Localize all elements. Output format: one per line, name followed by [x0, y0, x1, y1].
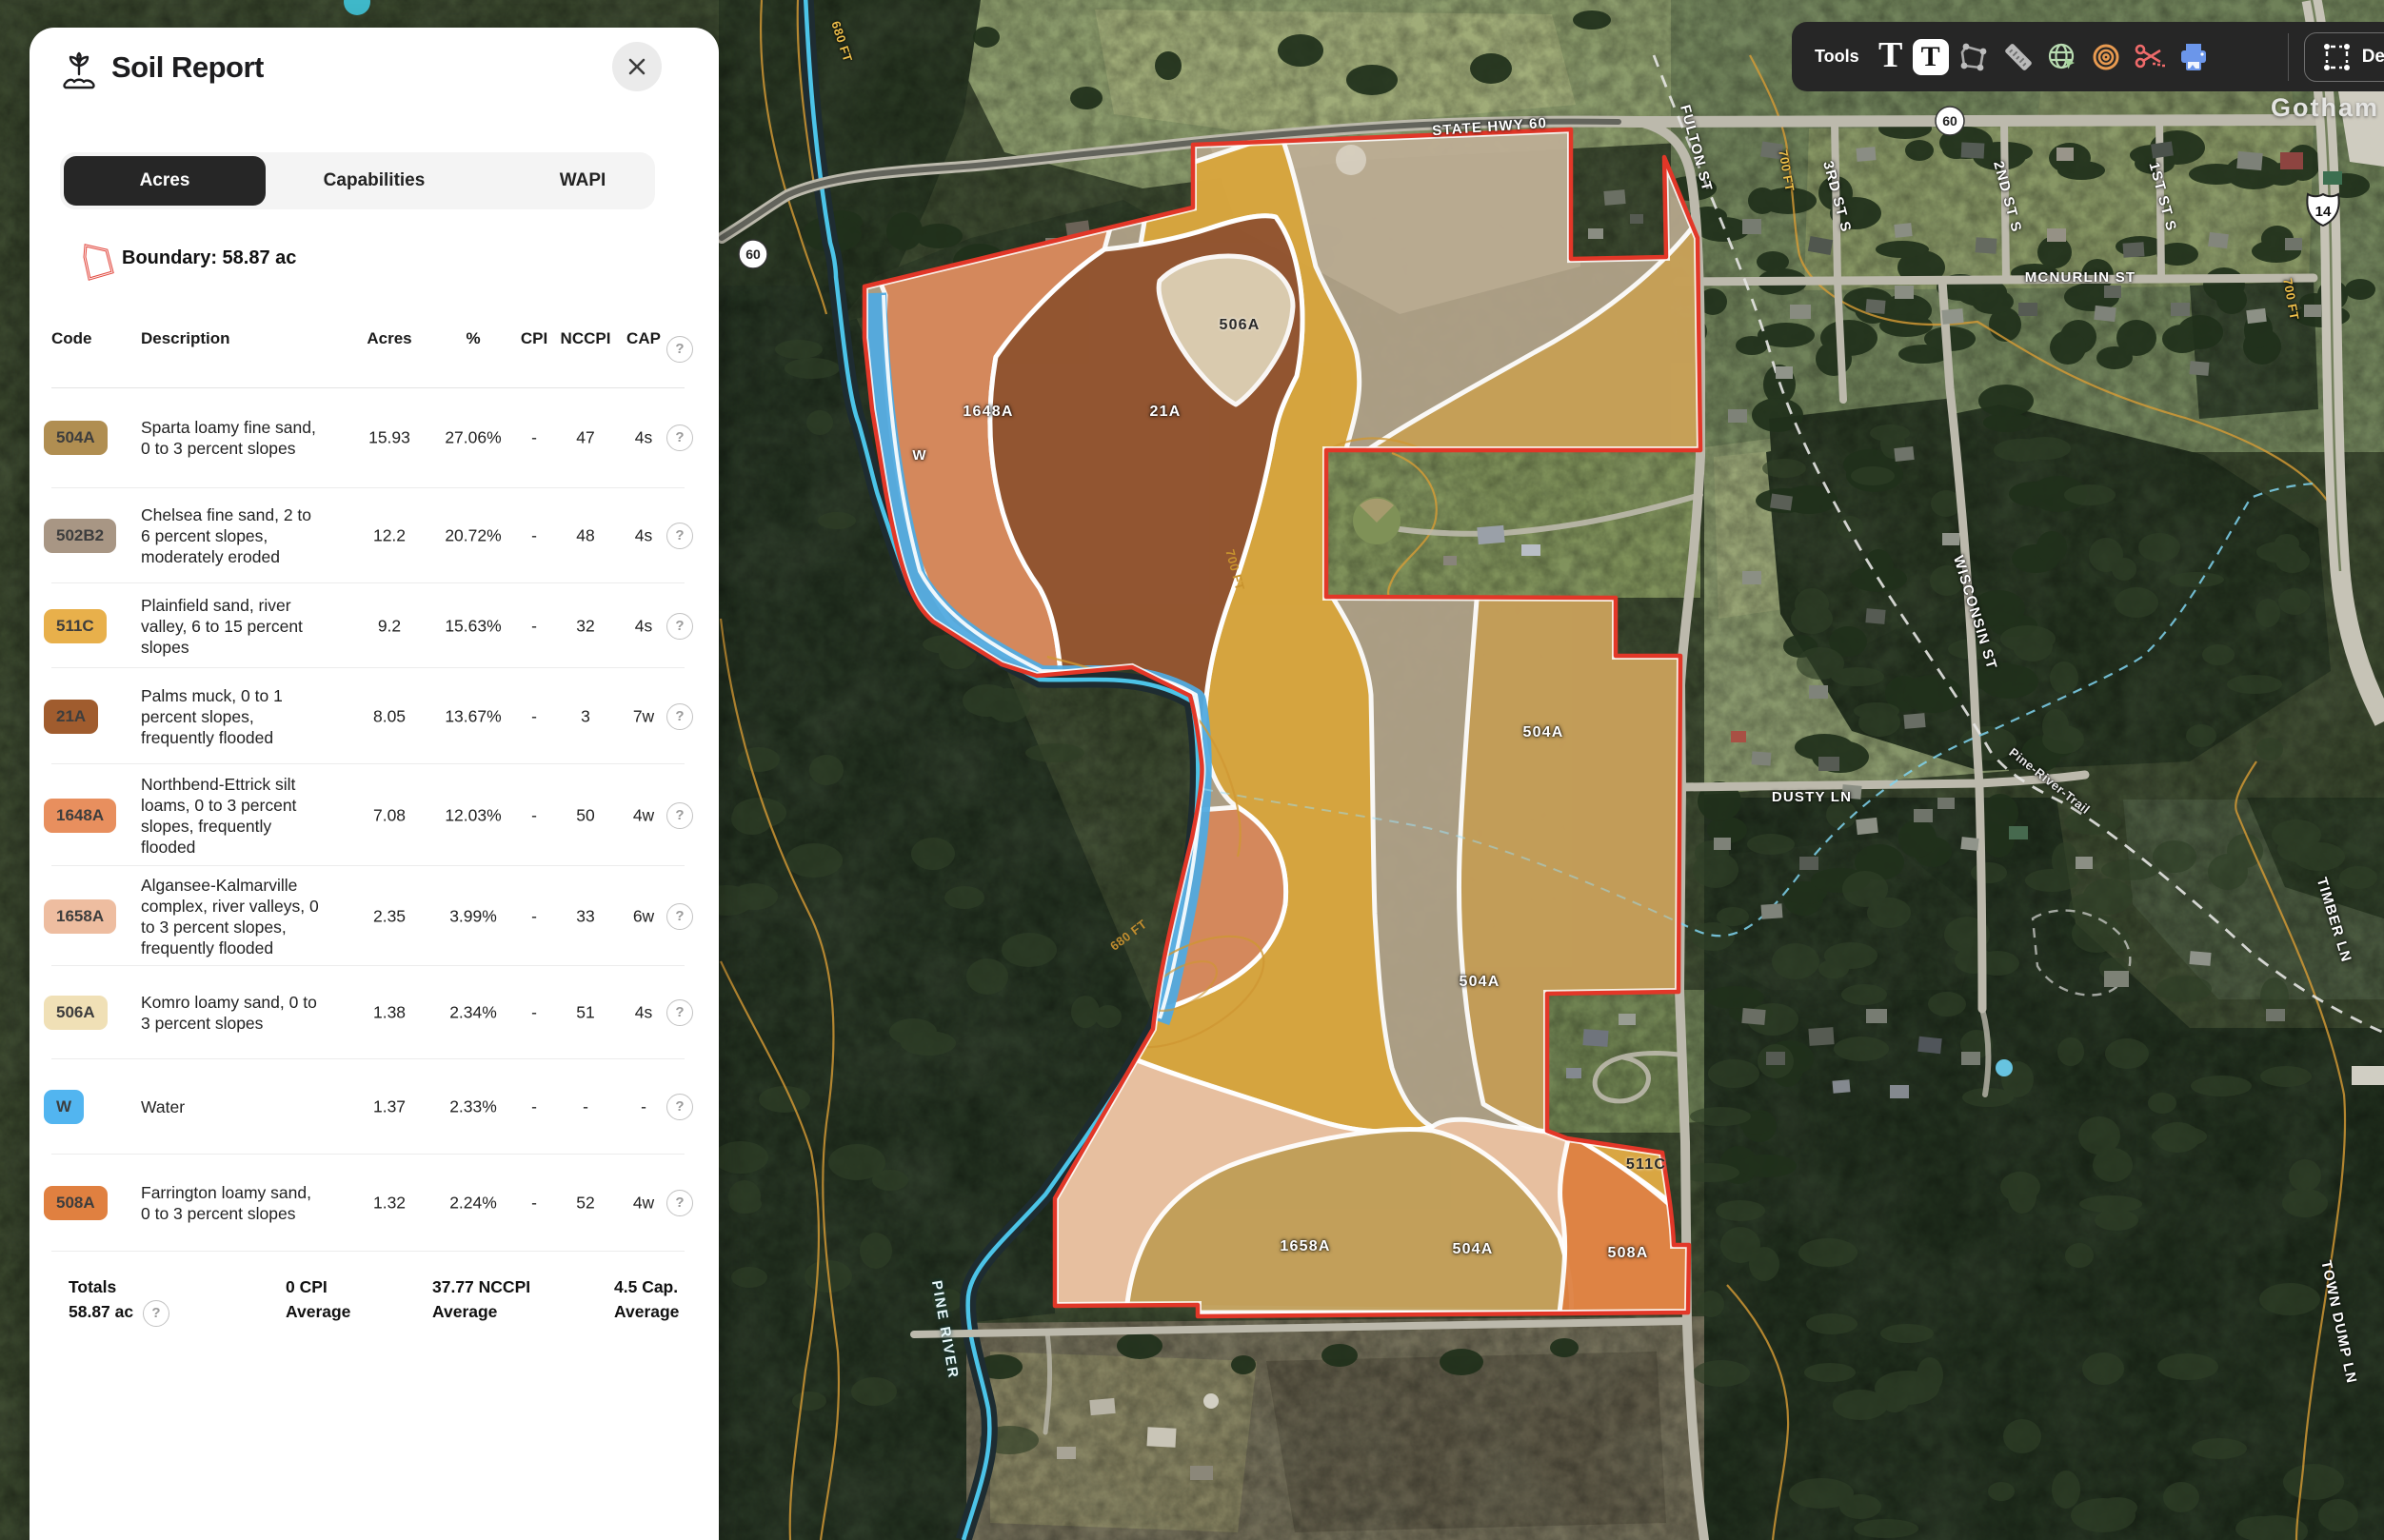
svg-text:21A: 21A	[1150, 404, 1182, 420]
svg-text:504A: 504A	[1452, 1241, 1493, 1257]
svg-text:W: W	[912, 447, 926, 464]
svg-text:60: 60	[745, 247, 761, 262]
svg-text:14: 14	[2315, 204, 2332, 220]
svg-text:DUSTY LN: DUSTY LN	[1772, 789, 1852, 805]
svg-text:MCNURLIN ST: MCNURLIN ST	[2025, 269, 2136, 286]
svg-text:504A: 504A	[1522, 724, 1563, 740]
svg-text:504A: 504A	[1459, 974, 1500, 990]
svg-text:511C: 511C	[1626, 1156, 1666, 1173]
svg-text:60: 60	[1942, 113, 1957, 128]
svg-text:1658A: 1658A	[1280, 1238, 1330, 1254]
svg-text:506A: 506A	[1219, 317, 1260, 333]
svg-text:508A: 508A	[1607, 1245, 1648, 1261]
svg-text:1648A: 1648A	[963, 404, 1013, 420]
svg-text:Gotham: Gotham	[2271, 93, 2379, 122]
